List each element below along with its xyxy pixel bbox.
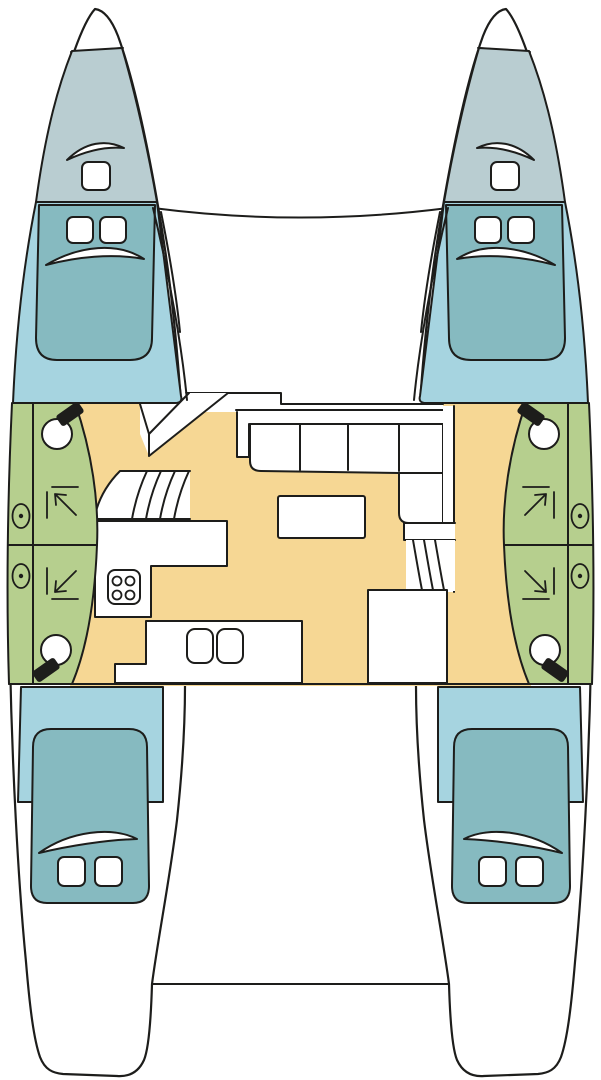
pillow-icon [67,217,93,243]
pillow-icon [58,857,85,886]
pillow-icon [95,857,122,886]
forward-berth [36,205,155,360]
catamaran-floor-plan [0,0,601,1080]
deck-hatch-icon [82,162,110,190]
starboard-step [404,523,455,540]
sink-left [187,629,213,663]
sink-right [217,629,243,663]
stove [108,570,140,604]
pillow-icon [100,217,126,243]
shelf-tab [237,412,249,457]
chart-area-unit [368,590,447,683]
foredeck-crossbeam-line [153,208,448,218]
salon-table [278,496,365,538]
aft-berth [31,729,149,903]
floor-plan-svg [0,0,601,1080]
